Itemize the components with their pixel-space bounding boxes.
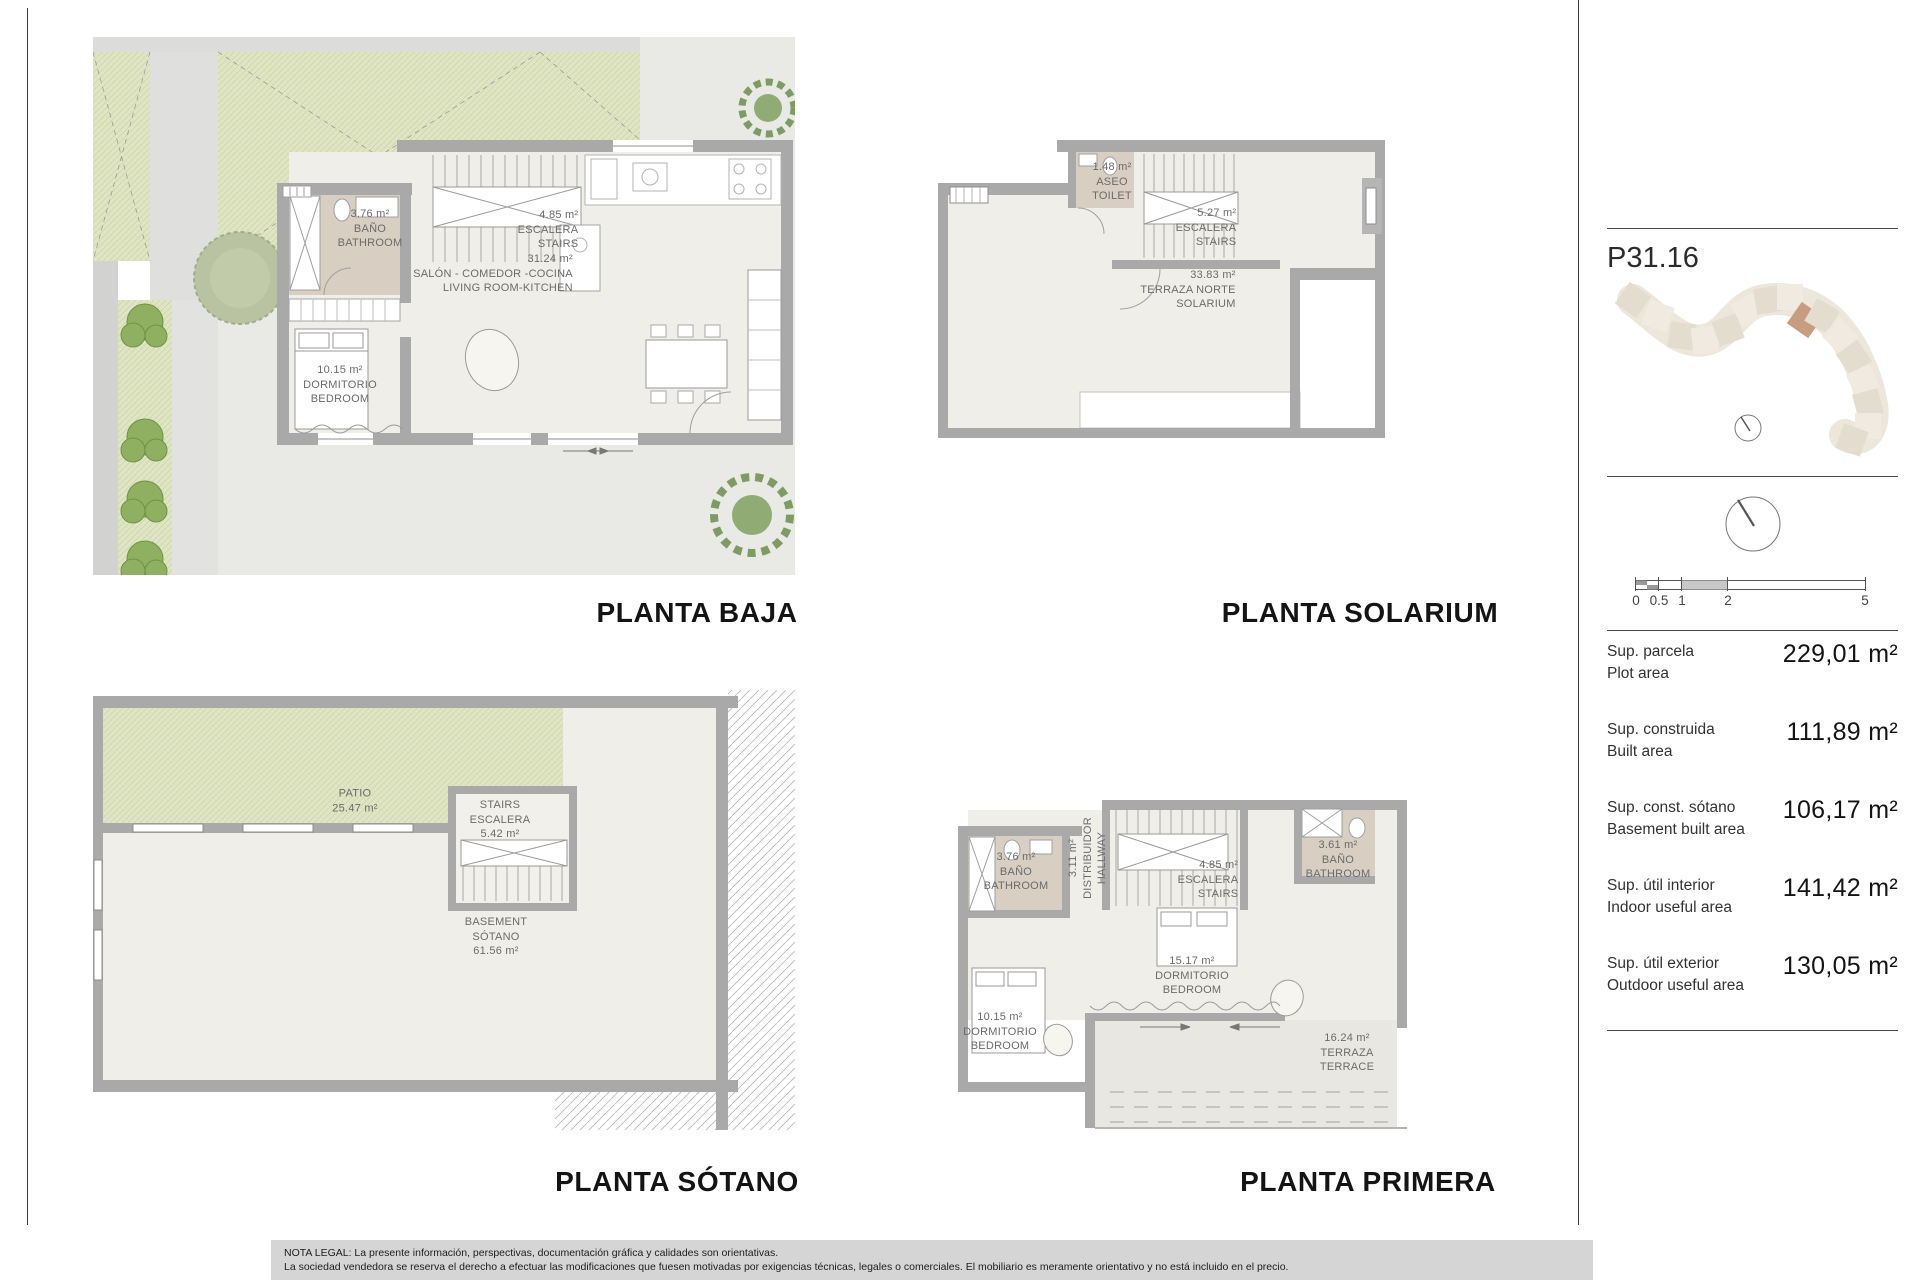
metric-plot-area-value: 229,01 m² — [1783, 641, 1898, 667]
left-page-border — [27, 8, 28, 1225]
scale-tick-0: 0 — [1632, 593, 1640, 608]
scale-tick-2: 2 — [1724, 593, 1732, 608]
plan-planta-baja: 3.76 m² BAÑO BATHROOM 4.85 m² ESCALERA S… — [93, 37, 795, 575]
room-label-primera-stairs: 4.85 m² ESCALERA STAIRS — [1178, 858, 1239, 902]
unit-code: P31.16 — [1607, 242, 1699, 275]
sidebar-separator-bottom — [1607, 1030, 1898, 1031]
metric-indoor-useful-area: Sup. útil interiorIndoor useful area 141… — [1607, 875, 1898, 919]
room-label-primera-bath-left: 3.76 m² BAÑO BATHROOM — [984, 850, 1049, 894]
room-label-primera-bath-right: 3.61 m² BAÑO BATHROOM — [1306, 838, 1371, 882]
plan-title-sotano: PLANTA SÓTANO — [555, 1166, 799, 1198]
room-label-primera-terrace: 16.24 m² TERRAZA TERRACE — [1320, 1031, 1374, 1075]
plan-title-baja: PLANTA BAJA — [596, 597, 797, 629]
planta-baja-drawing — [93, 37, 795, 575]
room-label-primera-hallway: 3.11 m² DISTRIBUIDOR HALLWAY — [1066, 817, 1110, 899]
scale-tick-05: 0.5 — [1650, 593, 1669, 608]
metric-outdoor-useful-area: Sup. útil exteriorOutdoor useful area 13… — [1607, 953, 1898, 997]
room-label-baja-living: 31.24 m² SALÓN - COMEDOR -COCINA LIVING … — [413, 252, 573, 296]
plan-title-primera: PLANTA PRIMERA — [1240, 1166, 1496, 1198]
plan-sheet: 3.76 m² BAÑO BATHROOM 4.85 m² ESCALERA S… — [0, 0, 1920, 1280]
sidebar-divider — [1578, 0, 1579, 1225]
plan-title-solarium: PLANTA SOLARIUM — [1222, 597, 1499, 629]
sidebar-separator-top — [1607, 228, 1898, 229]
metric-built-area: Sup. construidaBuilt area 111,89 m² — [1607, 719, 1898, 763]
plan-planta-primera: 3.76 m² BAÑO BATHROOM 3.11 m² DISTRIBUID… — [950, 800, 1412, 1146]
room-label-sotano-basement: BASEMENT SÓTANO 61.56 m² — [465, 915, 528, 959]
room-label-solarium-toilet: 1.48 m² ASEO TOILET — [1092, 160, 1132, 204]
room-label-baja-bath: 3.76 m² BAÑO BATHROOM — [338, 207, 403, 251]
legal-note-bar: NOTA LEGAL: La presente información, per… — [271, 1240, 1593, 1280]
scale-bar-graphic — [1635, 576, 1870, 592]
plan-planta-solarium: 1.48 m² ASEO TOILET 5.27 m² ESCALERA STA… — [938, 140, 1408, 450]
room-label-baja-bedroom: 10.15 m² DORMITORIO BEDROOM — [303, 363, 377, 407]
scale-bar: 0 0.5 1 2 5 — [1635, 576, 1870, 616]
site-plan-north-icon — [1735, 415, 1761, 441]
sidebar-separator-scale — [1607, 630, 1898, 631]
planta-sotano-drawing — [93, 690, 795, 1160]
sidebar-separator-siteplan — [1607, 476, 1898, 477]
room-label-sotano-patio: PATIO 25.47 m² — [332, 786, 377, 815]
room-label-primera-bedroom-left: 10.15 m² DORMITORIO BEDROOM — [963, 1010, 1037, 1054]
baja-house — [277, 140, 793, 454]
room-label-primera-bedroom-main: 15.17 m² DORMITORIO BEDROOM — [1155, 954, 1229, 998]
metric-plot-area: Sup. parcelaPlot area 229,01 m² — [1607, 641, 1898, 685]
site-plan-diagram — [1600, 278, 1910, 470]
scale-tick-5: 5 — [1861, 593, 1869, 608]
metric-indoor-useful-area-value: 141,42 m² — [1783, 875, 1898, 901]
metric-basement-built-area: Sup. const. sótanoBasement built area 10… — [1607, 797, 1898, 841]
scale-tick-1: 1 — [1678, 593, 1686, 608]
room-label-baja-stairs: 4.85 m² ESCALERA STAIRS — [518, 208, 579, 252]
legal-line1: NOTA LEGAL: La presente información, per… — [284, 1247, 1593, 1261]
metric-basement-built-area-value: 106,17 m² — [1783, 797, 1898, 823]
room-label-solarium-terrace: 33.83 m² TERRAZA NORTE SOLARIUM — [1140, 268, 1235, 312]
metric-built-area-value: 111,89 m² — [1786, 719, 1898, 745]
legal-line2: La sociedad vendedora se reserva el dere… — [284, 1261, 1593, 1275]
room-label-solarium-stairs: 5.27 m² ESCALERA STAIRS — [1176, 206, 1237, 250]
room-label-sotano-stairs: STAIRS ESCALERA 5.42 m² — [470, 798, 531, 842]
metric-outdoor-useful-area-value: 130,05 m² — [1783, 953, 1898, 979]
compass-icon — [1720, 492, 1790, 562]
plan-planta-sotano: PATIO 25.47 m² STAIRS ESCALERA 5.42 m² B… — [93, 690, 795, 1160]
